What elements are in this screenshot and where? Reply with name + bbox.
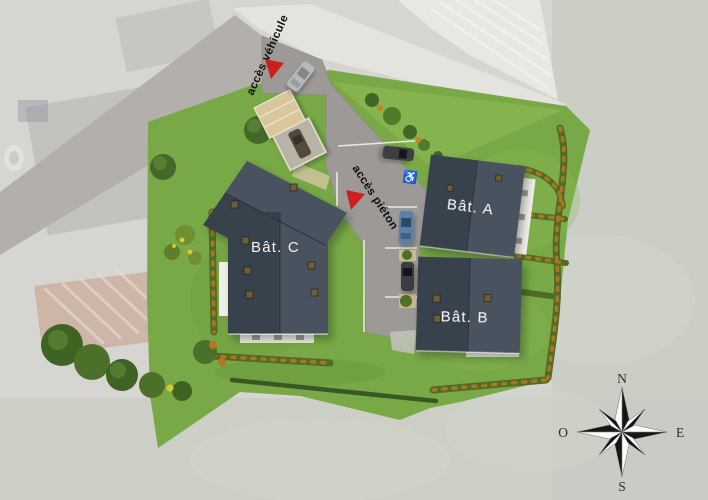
compass-south-label: S <box>618 479 626 494</box>
compass-west-label: O <box>558 425 568 440</box>
compass-north-label: N <box>617 371 627 386</box>
building-b-roof-light <box>468 258 522 353</box>
terrace-bat-c-west <box>219 262 228 316</box>
handicap-parking-icon: ♿ <box>402 169 419 185</box>
building-a: Bât. A <box>420 155 526 258</box>
building-c-label: Bât. C <box>251 239 300 256</box>
site-plan-svg: ♿ <box>0 0 708 500</box>
car-dark <box>401 262 414 291</box>
building-c-main-roof-light <box>280 212 328 334</box>
compass-east-label: E <box>676 425 684 440</box>
building-b-label: Bât. B <box>440 308 488 326</box>
car-blue <box>398 211 413 244</box>
site-plan-image: ♿ <box>0 0 708 500</box>
building-b: Bât. B <box>416 257 522 354</box>
